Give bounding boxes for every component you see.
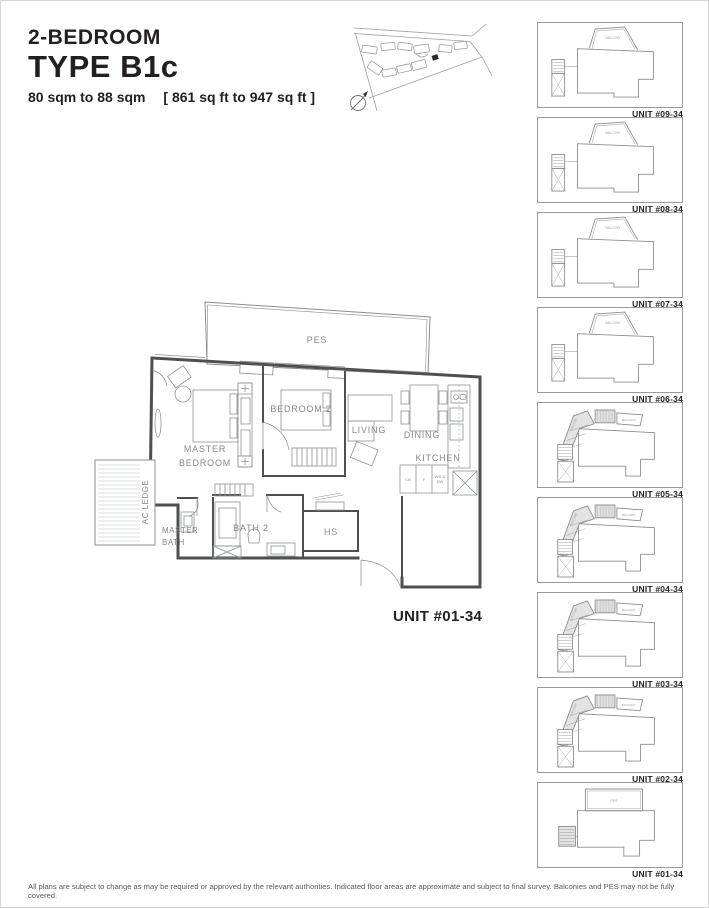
key-plan-unit-07-34: UNIT #07-34 — [537, 212, 683, 309]
main-floor-plan: PES — [85, 290, 515, 645]
page-title: TYPE B1c — [28, 49, 315, 85]
appliance-label-wd-dw-2: DW — [437, 479, 444, 484]
header: 2-BEDROOM TYPE B1c 80 sqm to 88 sqm [ 86… — [28, 26, 315, 105]
key-plan-unit-03-34: UNIT #03-34 — [537, 592, 683, 689]
room-label-pes: PES — [307, 335, 327, 345]
key-plan-unit-label: UNIT #01-34 — [537, 869, 683, 879]
doors — [152, 370, 400, 586]
key-plan-drawing — [537, 402, 683, 488]
interior-walls — [178, 364, 402, 578]
room-label-master-bedroom-1: MASTER — [184, 444, 226, 454]
outer-walls — [150, 358, 480, 587]
room-label-ac-ledge: AC LEDGE — [141, 480, 150, 524]
key-plan-drawing — [537, 497, 683, 583]
appliance-label-f: F — [423, 477, 426, 482]
room-label-hs: HS — [324, 527, 338, 537]
page-subtitle: 2-BEDROOM — [28, 26, 315, 49]
dining-furniture — [401, 385, 447, 431]
room-label-dining: DINING — [404, 430, 440, 440]
floor-plan-page: 2-BEDROOM TYPE B1c 80 sqm to 88 sqm [ 86… — [0, 0, 709, 908]
window-lines — [155, 355, 428, 373]
appliance-label-cb: CB — [405, 477, 411, 482]
key-plan-unit-04-34: UNIT #04-34 — [537, 497, 683, 594]
subject-building-marker — [432, 54, 439, 61]
key-plan-unit-09-34: UNIT #09-34 — [537, 22, 683, 119]
room-label-master-bedroom-2: BEDROOM — [179, 458, 231, 468]
main-unit-number: UNIT #01-34 — [393, 608, 508, 625]
ac-ledge: AC LEDGE — [95, 460, 155, 545]
disclaimer-text: All plans are subject to change as may b… — [28, 882, 693, 900]
key-plan-unit-02-34: UNIT #02-34 — [537, 687, 683, 784]
room-label-living: LIVING — [352, 425, 386, 435]
area-metric: 80 sqm to 88 sqm — [28, 89, 146, 105]
key-plan-drawing — [537, 687, 683, 773]
road-diagonal — [369, 57, 492, 98]
room-label-bedroom2: BEDROOM 2 — [270, 404, 331, 414]
site-buildings — [362, 41, 468, 77]
key-plan-drawing — [537, 212, 683, 298]
key-plan-drawing — [537, 22, 683, 108]
key-plan-drawing — [537, 117, 683, 203]
key-plan-unit-08-34: UNIT #08-34 — [537, 117, 683, 214]
key-plan-drawing — [537, 592, 683, 678]
site-location-map — [340, 14, 520, 126]
area-line: 80 sqm to 88 sqm [ 861 sq ft to 947 sq f… — [28, 89, 315, 105]
key-plan-drawing — [537, 307, 683, 393]
key-plan-drawing — [537, 782, 683, 868]
room-label-master-bath-2: BATH — [162, 538, 185, 547]
road-top — [354, 28, 472, 42]
room-label-master-bath-1: MASTER — [162, 526, 198, 535]
north-compass-icon — [351, 91, 369, 111]
key-plan-unit-06-34: UNIT #06-34 — [537, 307, 683, 404]
area-imperial: [ 861 sq ft to 947 sq ft ] — [163, 89, 315, 105]
room-label-kitchen: KITCHEN — [415, 453, 460, 463]
hs-shelf — [313, 493, 344, 510]
key-plan-unit-05-34: UNIT #05-34 — [537, 402, 683, 499]
room-label-bath2: BATH 2 — [233, 523, 269, 533]
road-right — [470, 24, 486, 57]
key-plan-unit-01-34: UNIT #01-34 — [537, 782, 683, 879]
bedroom2-furniture — [281, 390, 336, 466]
